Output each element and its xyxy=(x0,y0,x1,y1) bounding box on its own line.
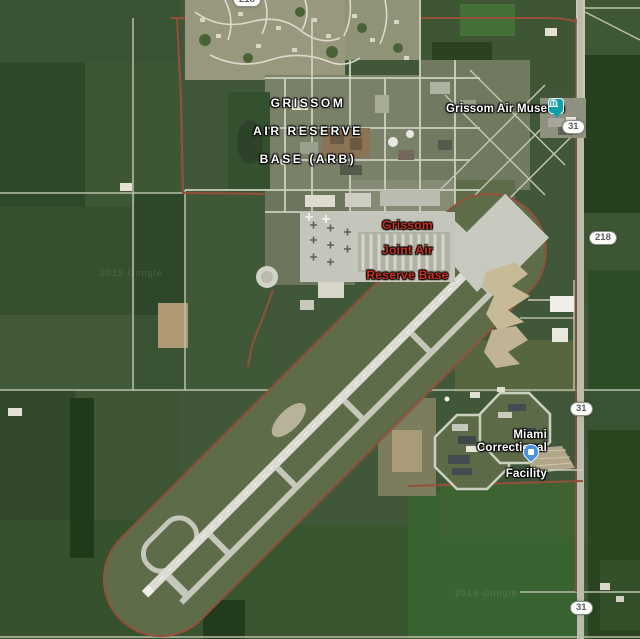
poi-label-grissom-joint-air-reserve-base: Grissom Joint Air Reserve Base xyxy=(330,206,485,294)
route-shield-31-south: 31 xyxy=(570,601,593,615)
route-shield-218-top: 218 xyxy=(233,0,261,7)
building-glyph xyxy=(528,449,534,455)
area-label-grissom-arb: GRISSOM AIR RESERVE BASE (ARB) xyxy=(218,82,398,180)
route-shield-218-east: 218 xyxy=(589,231,617,245)
imagery-watermark: 2019 Google xyxy=(100,268,163,278)
imagery-watermark: 2019 Google xyxy=(455,588,518,598)
museum-poi-icon[interactable] xyxy=(548,98,564,114)
route-shield-31-mid: 31 xyxy=(570,402,593,416)
route-shield-31-north: 31 xyxy=(562,120,585,134)
satellite-map[interactable]: GRISSOM AIR RESERVE BASE (ARB) Grissom J… xyxy=(0,0,640,639)
